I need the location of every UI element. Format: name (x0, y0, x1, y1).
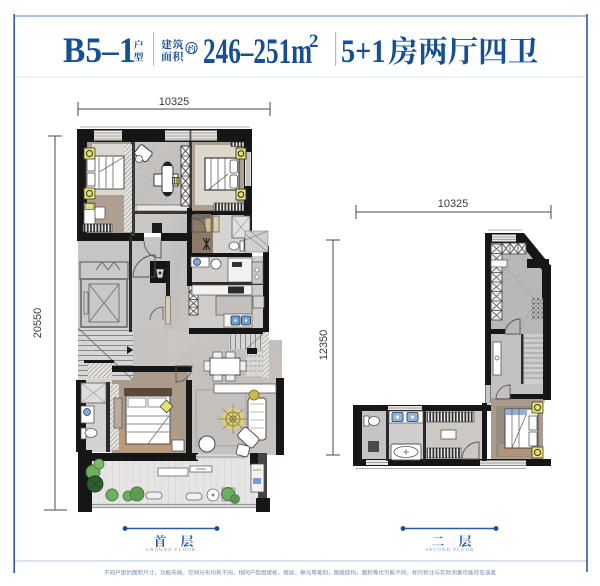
svg-text:20550: 20550 (32, 308, 44, 339)
svg-text:246–251m: 246–251m (203, 31, 312, 72)
svg-text:GROUND FLOOR: GROUND FLOOR (146, 547, 196, 552)
svg-text:10325: 10325 (438, 198, 469, 210)
svg-text:2: 2 (309, 31, 319, 52)
svg-text:12350: 12350 (318, 330, 330, 361)
svg-text:5+1: 5+1 (341, 33, 386, 69)
svg-text:B5–1: B5–1 (63, 30, 136, 70)
svg-text:10325: 10325 (159, 96, 190, 108)
svg-text:SECOND FLOOR: SECOND FLOOR (426, 547, 475, 552)
